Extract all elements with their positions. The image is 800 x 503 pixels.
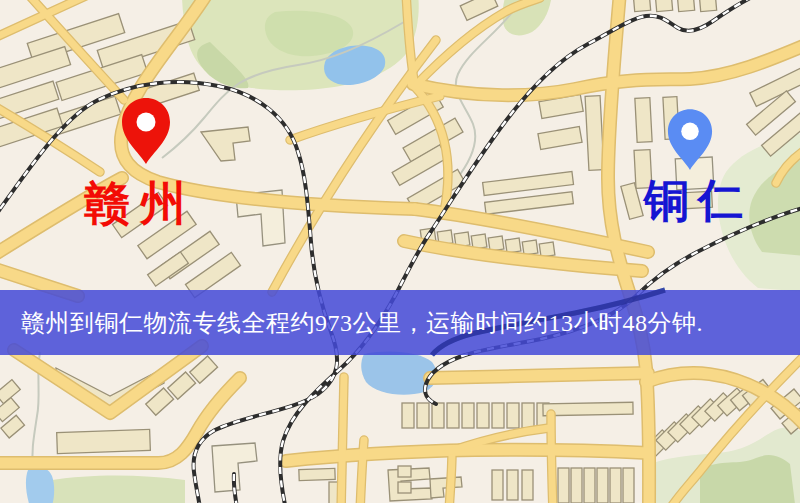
route-info-banner: 赣州到铜仁物流专线全程约973公里，运输时间约13小时48分钟. — [0, 290, 800, 355]
destination-label: 铜仁 — [644, 179, 752, 224]
map-canvas[interactable] — [0, 0, 800, 503]
route-info-text: 赣州到铜仁物流专线全程约973公里，运输时间约13小时48分钟. — [21, 307, 703, 339]
origin-label: 赣州 — [84, 181, 196, 227]
map-screenshot: 赣州到铜仁物流专线全程约973公里，运输时间约13小时48分钟. 赣州 铜仁 — [0, 0, 800, 503]
